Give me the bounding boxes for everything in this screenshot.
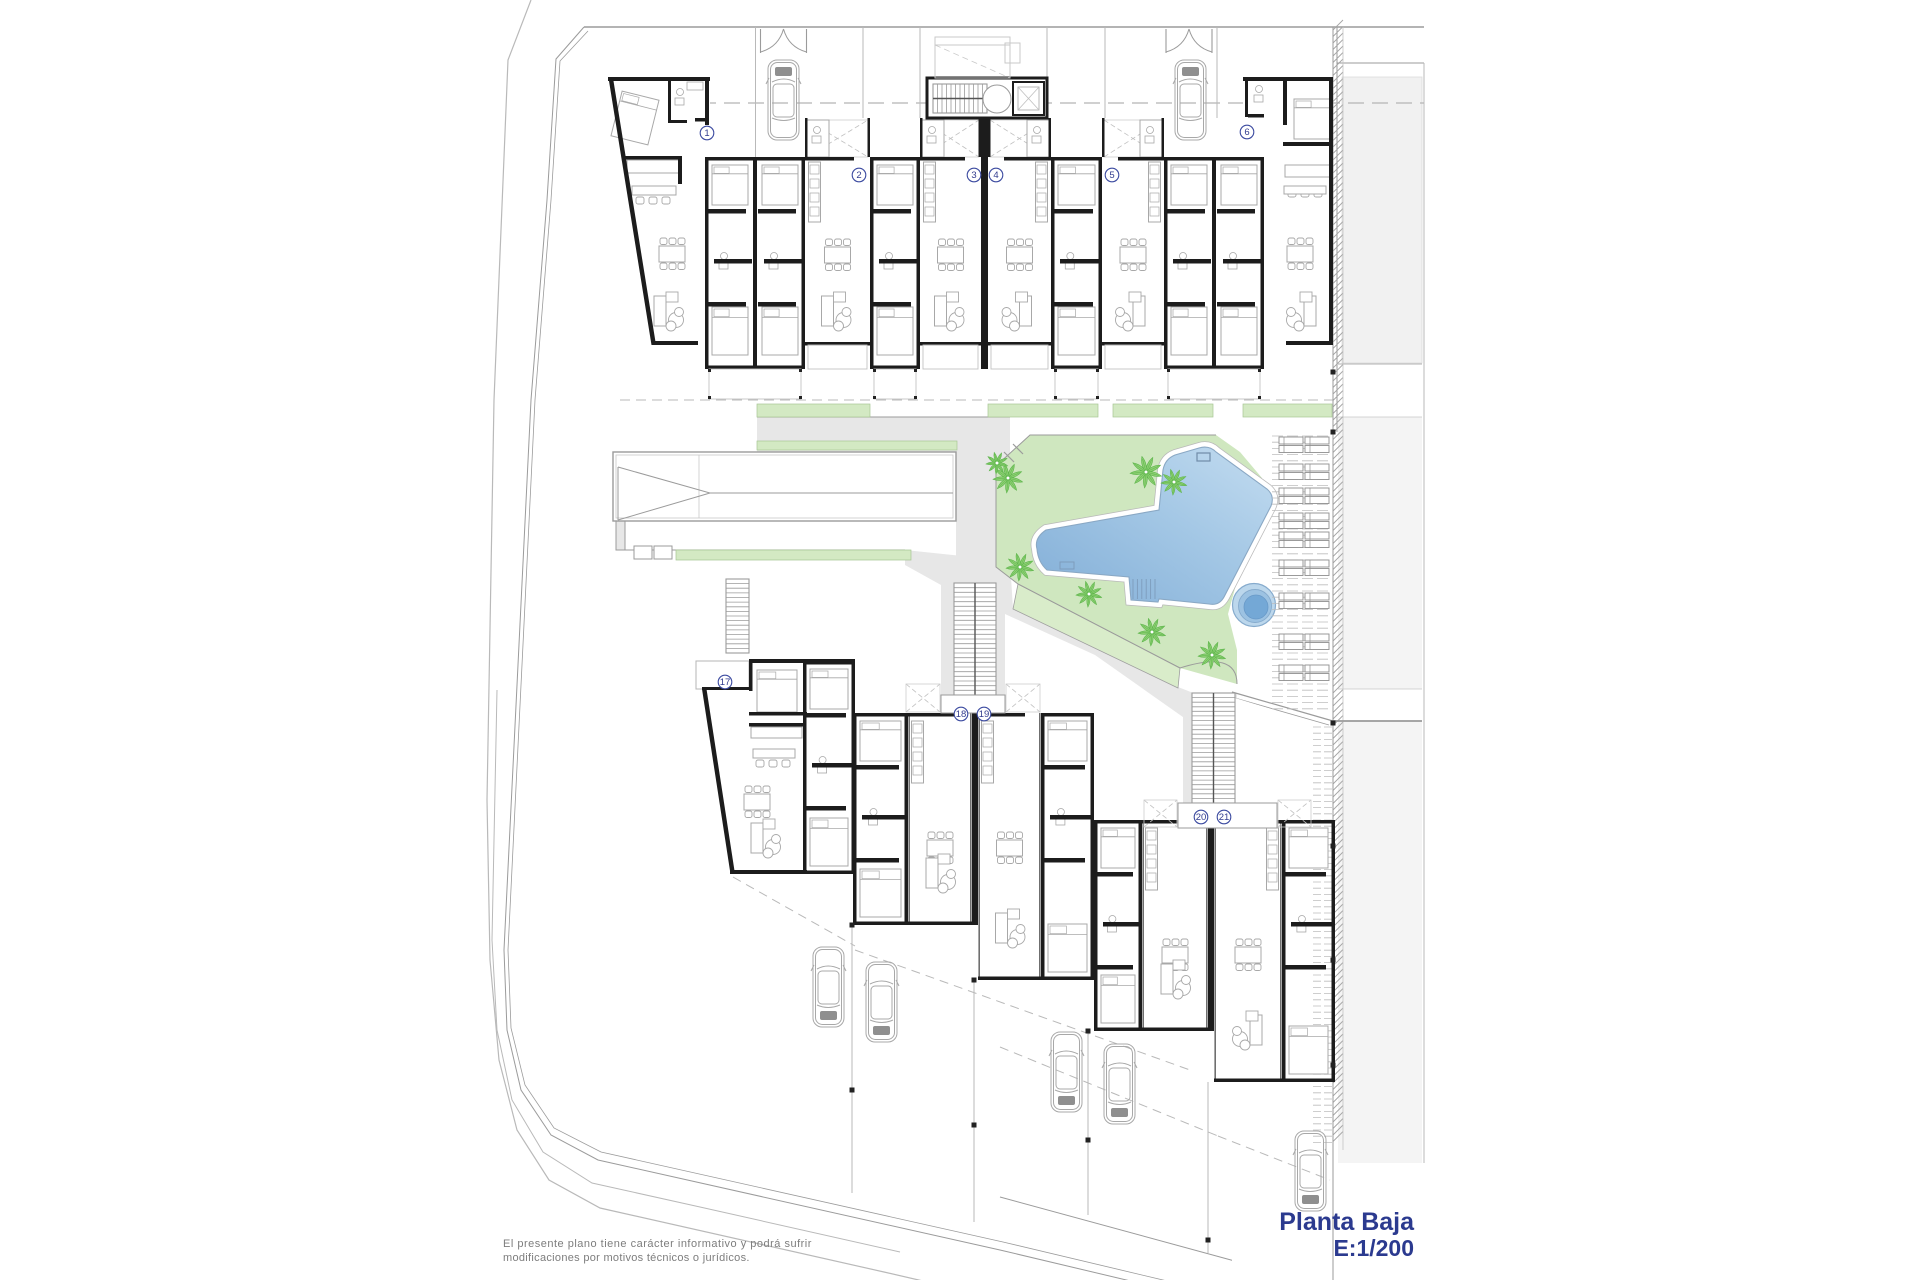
svg-text:4: 4: [993, 170, 998, 181]
svg-text:El presente plano tiene ca: El presente plano tiene carácter informa…: [503, 1238, 812, 1250]
svg-text:modificaciones por motivos téc: modificaciones por motivos técnicos o ju…: [503, 1252, 750, 1264]
svg-text:18: 18: [956, 709, 967, 720]
svg-text:E:1/200: E:1/200: [1333, 1235, 1414, 1261]
svg-text:19: 19: [979, 709, 990, 720]
svg-text:1: 1: [704, 128, 709, 139]
svg-text:6: 6: [1244, 127, 1249, 138]
svg-text:5: 5: [1109, 170, 1114, 181]
svg-text:20: 20: [1196, 812, 1207, 823]
svg-text:17: 17: [720, 677, 731, 688]
svg-text:21: 21: [1219, 812, 1230, 823]
svg-text:2: 2: [856, 170, 861, 181]
svg-text:Planta Baja: Planta Baja: [1279, 1208, 1415, 1236]
svg-text:3: 3: [971, 170, 976, 181]
